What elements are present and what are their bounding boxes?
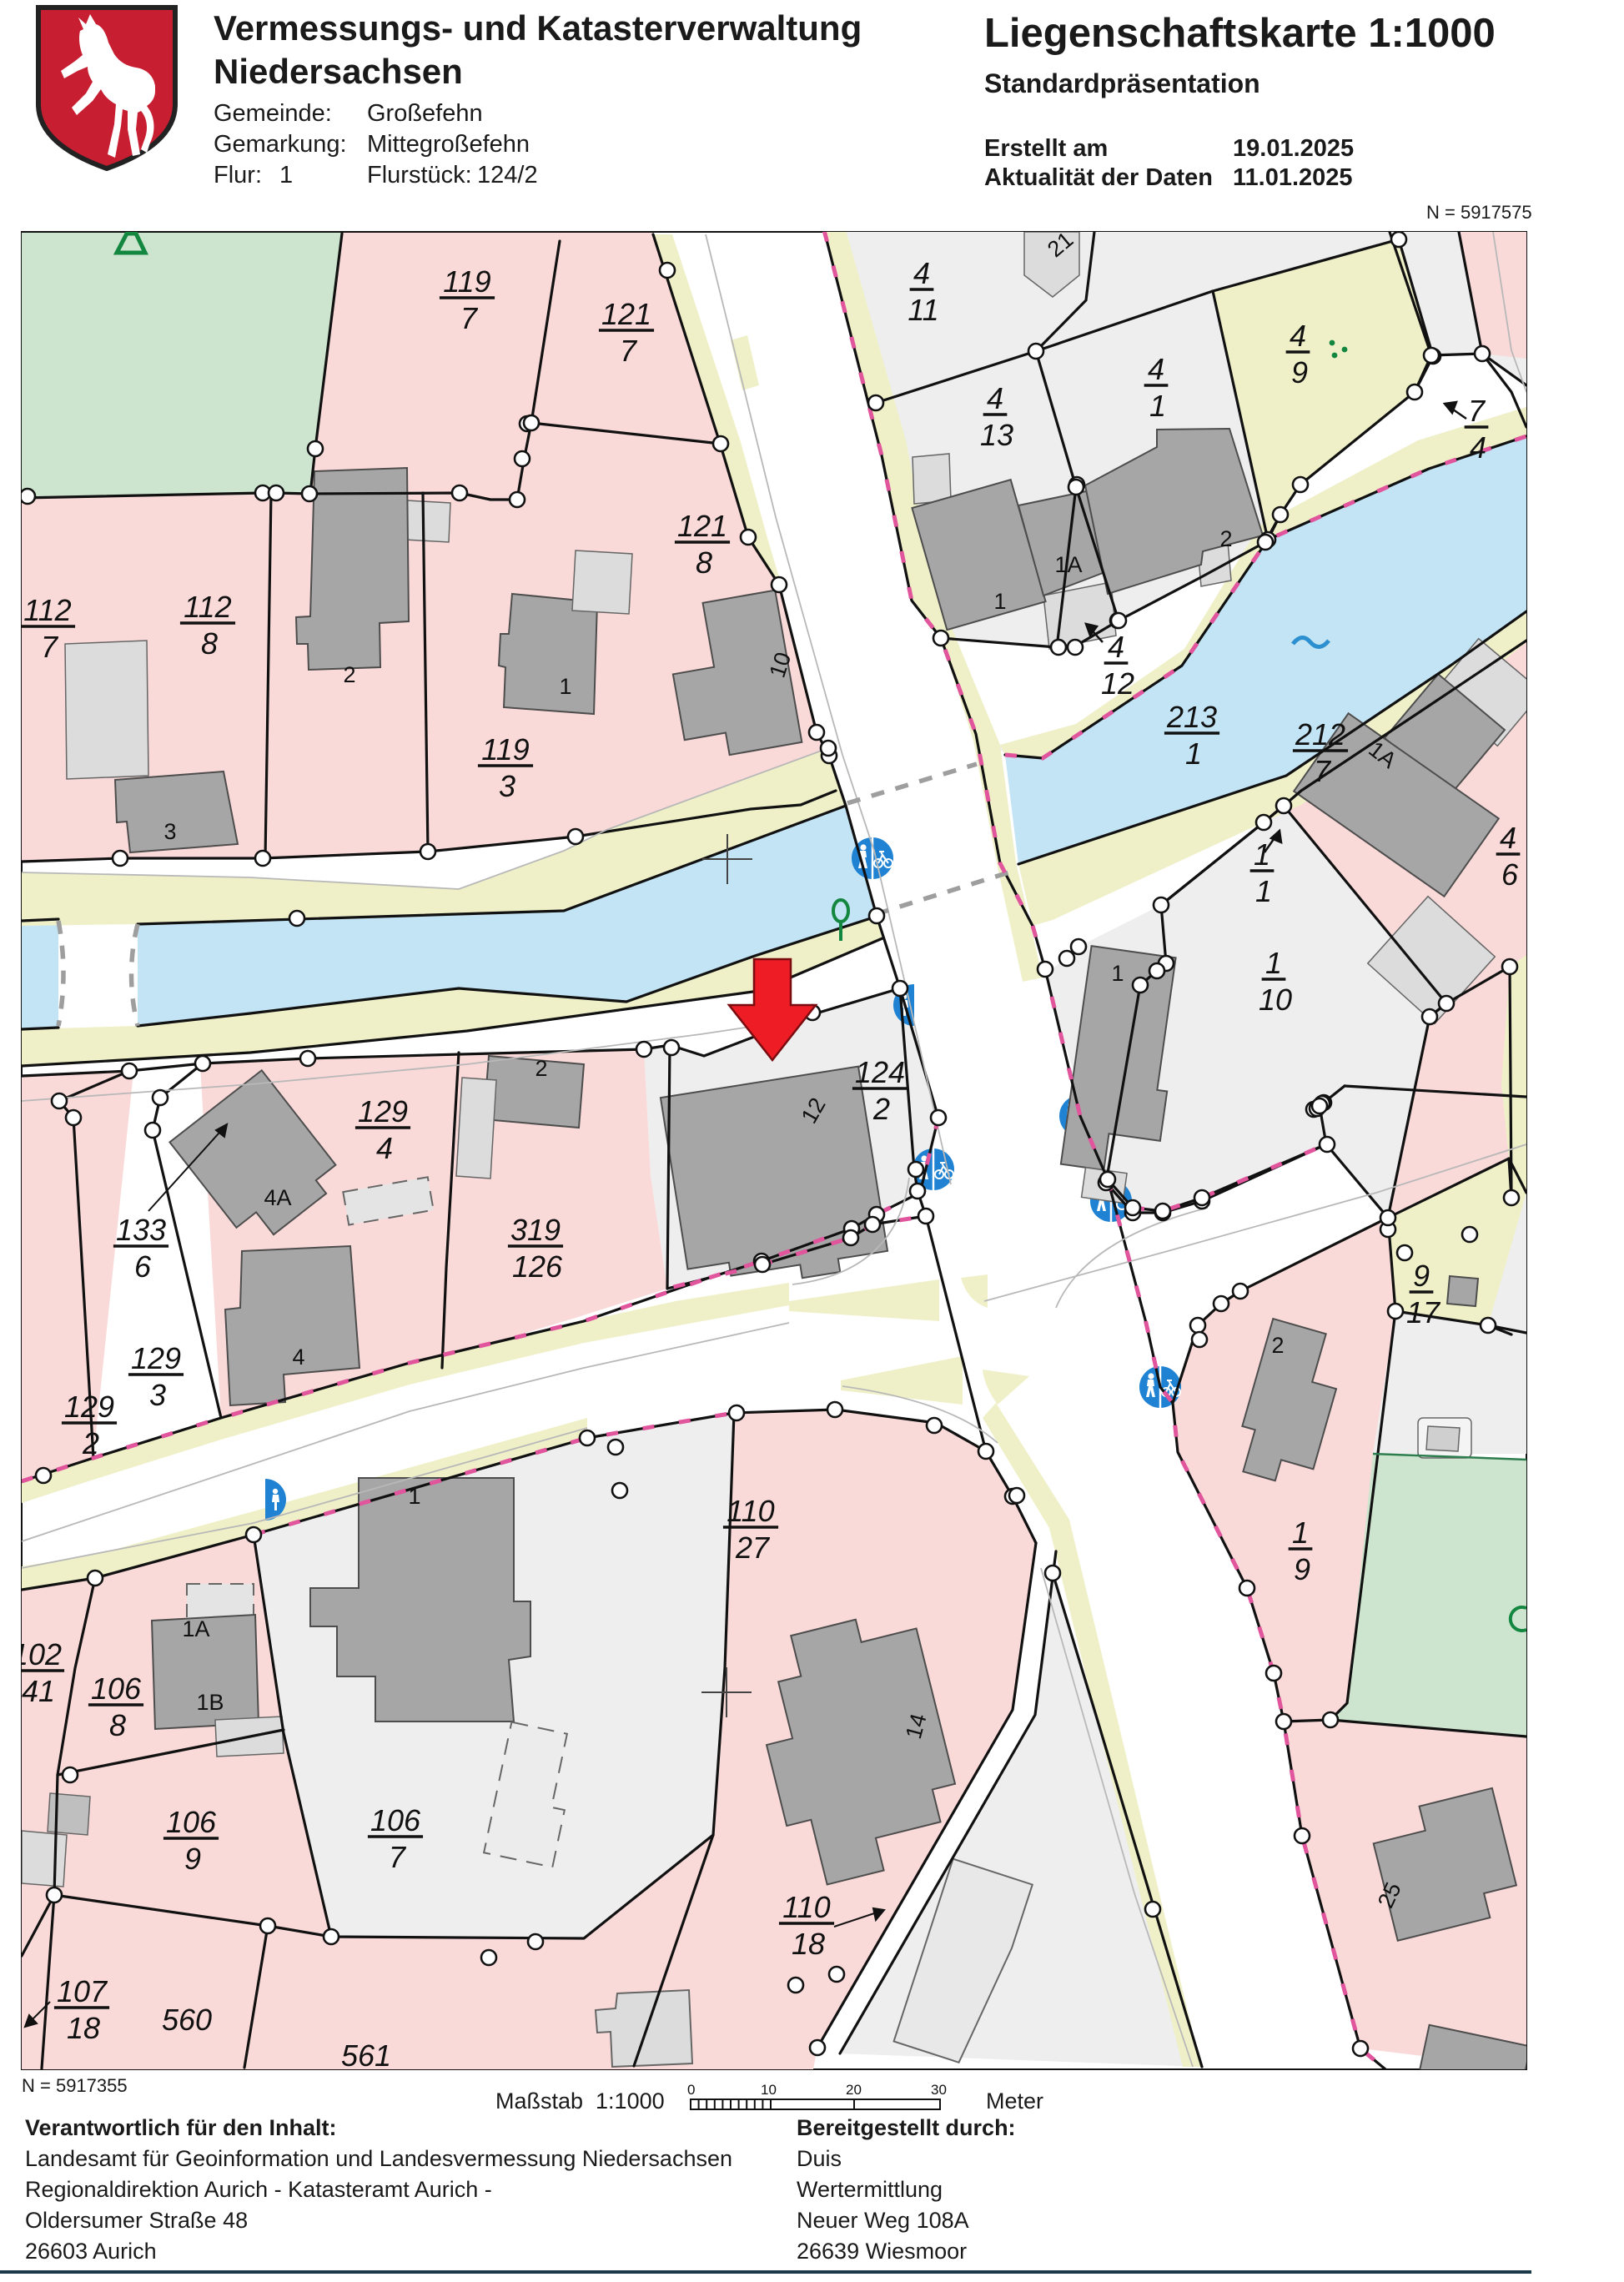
svg-text:7: 7 [41,630,59,664]
svg-text:1: 1 [559,674,571,699]
svg-text:107: 107 [57,1974,108,2008]
svg-text:2: 2 [1271,1333,1284,1358]
svg-text:9: 9 [1291,355,1308,390]
svg-text:4: 4 [1290,319,1306,353]
svg-text:4: 4 [1148,352,1164,386]
svg-text:8: 8 [109,1708,126,1742]
svg-text:3: 3 [163,819,176,844]
svg-text:8: 8 [201,626,218,661]
svg-text:12: 12 [1101,666,1134,701]
svg-text:3: 3 [499,769,515,803]
svg-text:121: 121 [601,297,651,331]
svg-text:106: 106 [370,1803,421,1837]
svg-text:18: 18 [792,1927,825,1961]
svg-text:20: 20 [846,2083,862,2098]
svg-text:7: 7 [1314,754,1332,788]
svg-text:1: 1 [1254,837,1270,872]
svg-text:13: 13 [980,418,1013,452]
svg-text:119: 119 [481,732,529,767]
svg-text:9: 9 [1294,1552,1310,1586]
svg-text:8: 8 [696,545,712,580]
svg-text:1: 1 [993,589,1006,614]
svg-text:11: 11 [908,293,938,327]
svg-text:112: 112 [184,590,231,624]
svg-text:17: 17 [1406,1295,1441,1329]
svg-text:2: 2 [343,662,355,687]
svg-text:4: 4 [292,1345,304,1370]
svg-text:9: 9 [184,1842,201,1876]
svg-text:4: 4 [1500,821,1516,855]
svg-text:27: 27 [735,1531,771,1565]
svg-text:6: 6 [1501,857,1519,892]
svg-text:1: 1 [1292,1515,1309,1550]
svg-text:126: 126 [512,1249,563,1284]
svg-text:1: 1 [408,1484,420,1509]
svg-text:6: 6 [134,1249,152,1284]
svg-text:102: 102 [12,1637,62,1671]
svg-text:1: 1 [1149,389,1166,423]
svg-text:4: 4 [913,256,930,290]
svg-text:1: 1 [1185,736,1202,771]
svg-text:7: 7 [389,1840,407,1874]
svg-text:0: 0 [687,2083,695,2098]
svg-text:4: 4 [1470,430,1486,465]
svg-text:106: 106 [166,1805,217,1839]
svg-text:1: 1 [1265,946,1282,980]
svg-text:121: 121 [677,509,727,543]
svg-text:213: 213 [1166,700,1217,734]
svg-text:2: 2 [535,1056,547,1081]
svg-text:4A: 4A [264,1185,291,1210]
svg-text:1: 1 [1255,874,1272,908]
svg-text:110: 110 [782,1890,830,1924]
svg-text:2: 2 [1219,526,1232,551]
svg-text:129: 129 [64,1390,114,1424]
svg-text:106: 106 [91,1671,142,1706]
svg-text:4: 4 [1108,630,1124,664]
svg-text:1A: 1A [1054,552,1082,577]
svg-text:112: 112 [23,593,71,627]
svg-text:2: 2 [872,1092,890,1126]
svg-text:2: 2 [82,1426,99,1460]
svg-text:3: 3 [149,1378,166,1412]
svg-text:9: 9 [1413,1259,1430,1293]
svg-text:119: 119 [443,264,490,299]
svg-text:129: 129 [358,1094,408,1128]
svg-text:30: 30 [931,2083,947,2098]
svg-text:10: 10 [1259,983,1292,1017]
svg-text:41: 41 [22,1674,55,1708]
svg-text:1A: 1A [182,1616,209,1641]
svg-text:7: 7 [460,301,479,335]
svg-text:561: 561 [341,2038,391,2073]
svg-text:133: 133 [116,1213,166,1247]
svg-text:129: 129 [131,1341,181,1375]
svg-text:319: 319 [510,1213,561,1247]
svg-text:4: 4 [376,1131,393,1165]
svg-text:212: 212 [1295,717,1345,751]
svg-text:10: 10 [761,2083,777,2098]
svg-text:1: 1 [1111,961,1124,986]
svg-text:124: 124 [855,1055,905,1089]
svg-text:4: 4 [987,381,1003,415]
svg-text:110: 110 [727,1494,774,1528]
svg-text:18: 18 [67,2011,100,2045]
svg-text:7: 7 [620,334,638,368]
svg-text:1B: 1B [196,1690,224,1715]
svg-text:560: 560 [162,2003,212,2037]
svg-text:7: 7 [1468,394,1486,428]
